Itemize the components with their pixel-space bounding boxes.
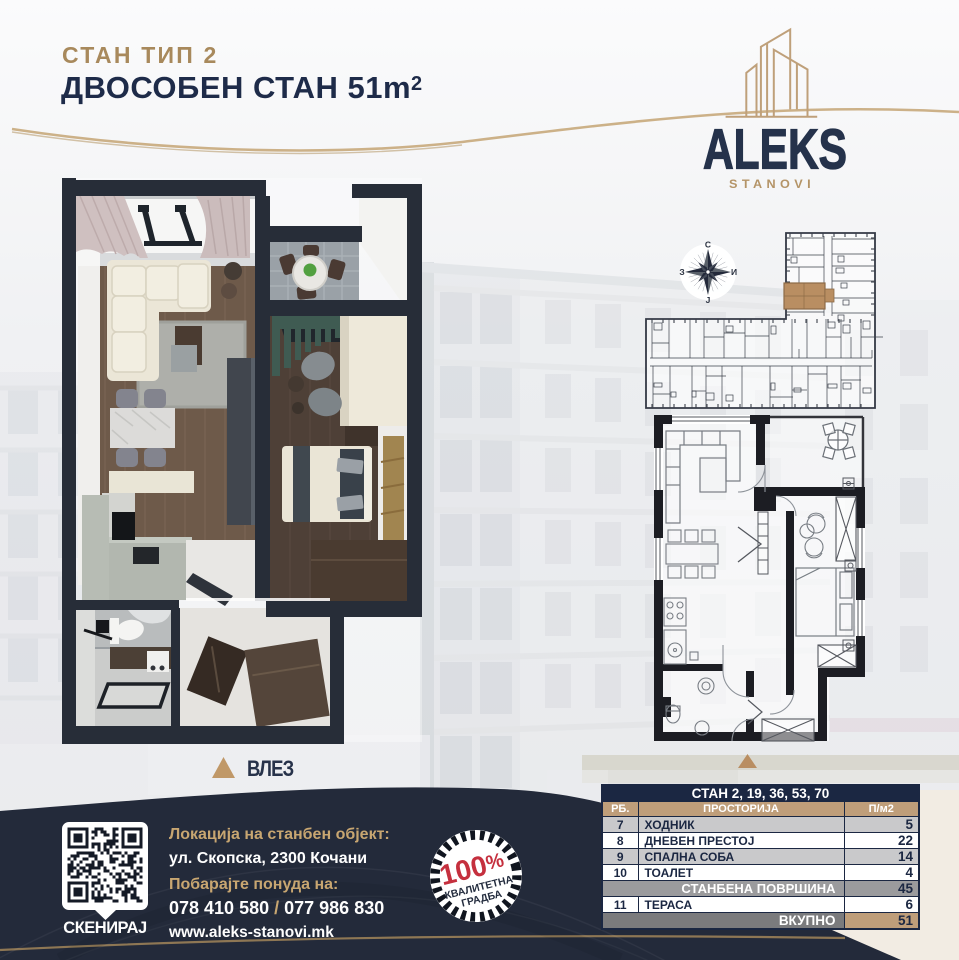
svg-text:ALEKS: ALEKS [703,118,847,182]
svg-text:STANOVI: STANOVI [729,179,815,191]
svg-text:З: З [679,267,684,277]
svg-text:Ј: Ј [706,295,711,305]
svg-text:И: И [731,267,737,277]
svg-text:С: С [705,240,711,250]
